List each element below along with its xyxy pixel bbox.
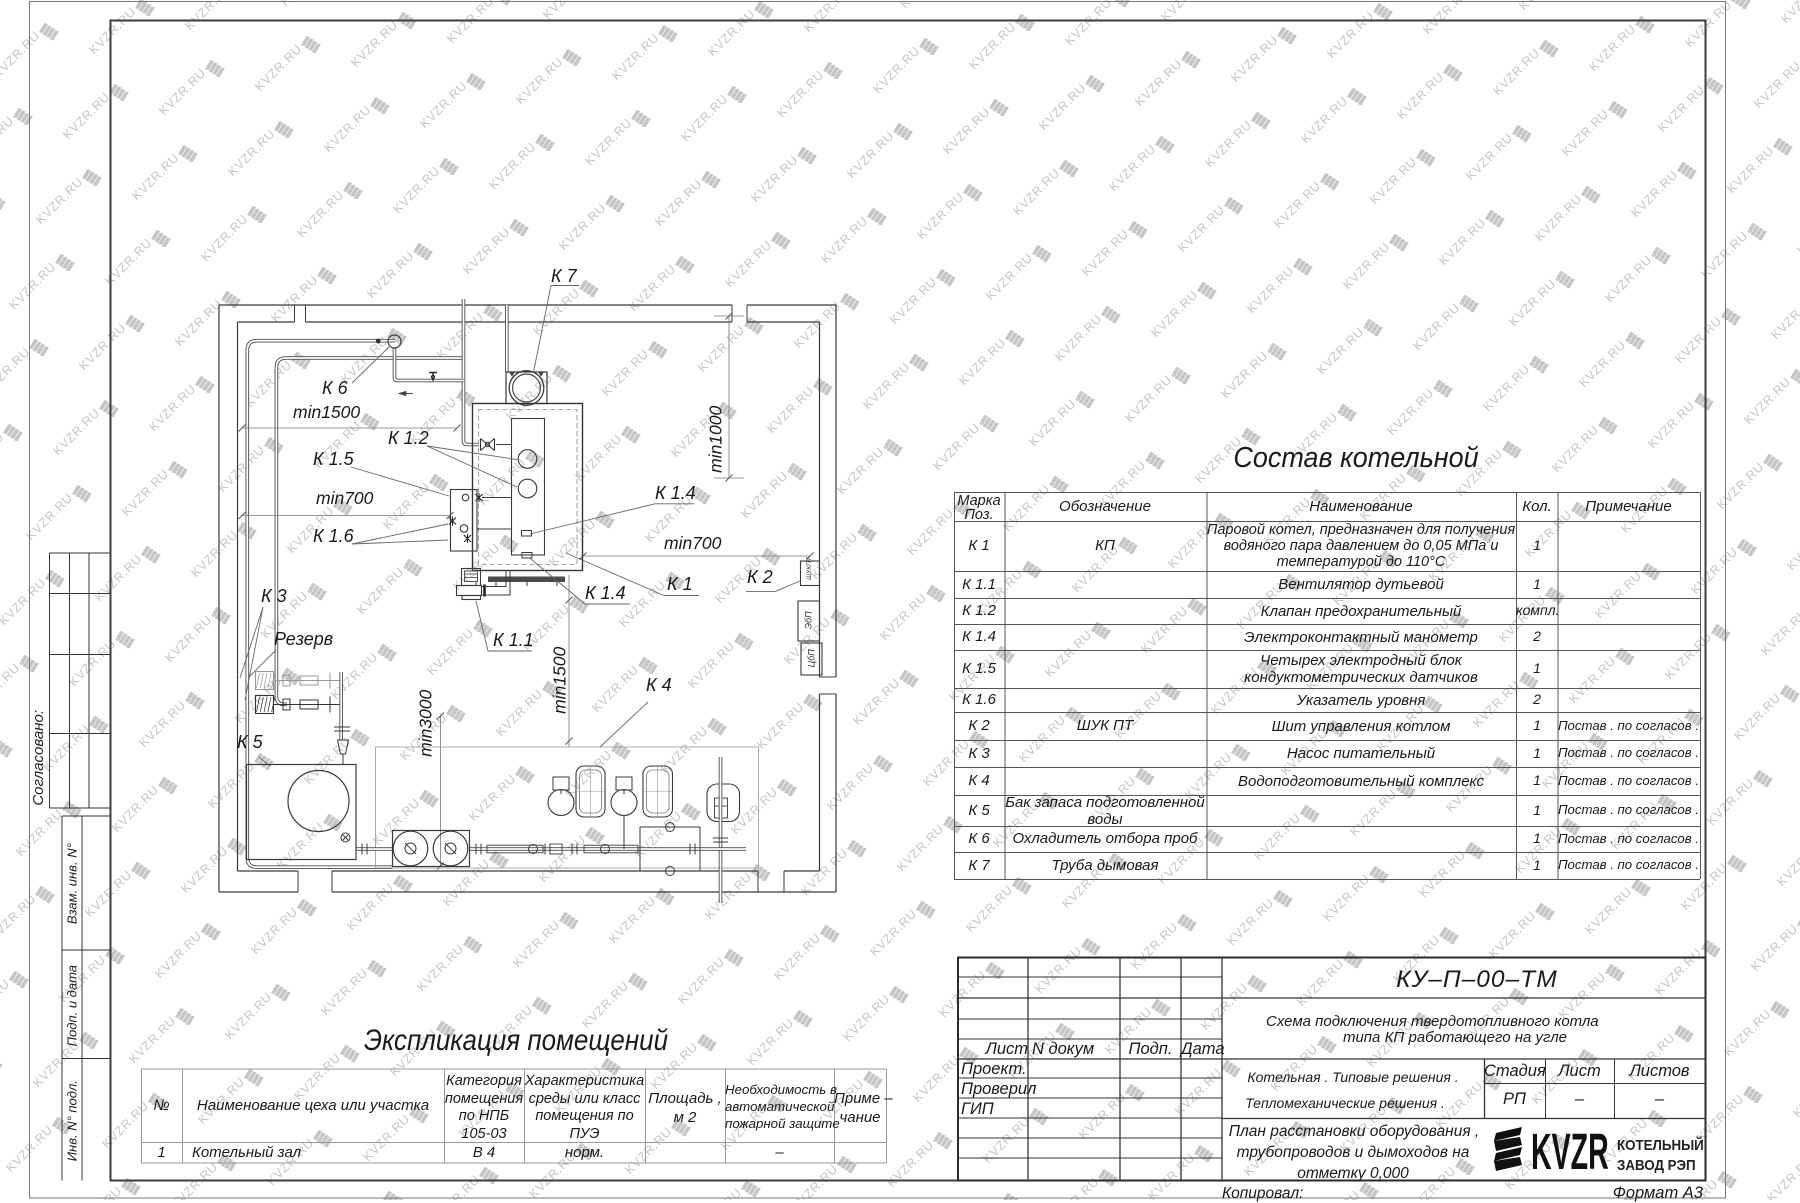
svg-text:КОТЕЛЬНЫЙ: КОТЕЛЬНЫЙ	[1617, 1135, 1704, 1153]
svg-text:KVZR: KVZR	[1531, 1124, 1609, 1180]
svg-text:ЗАВОД РЭП: ЗАВОД РЭП	[1617, 1156, 1696, 1173]
